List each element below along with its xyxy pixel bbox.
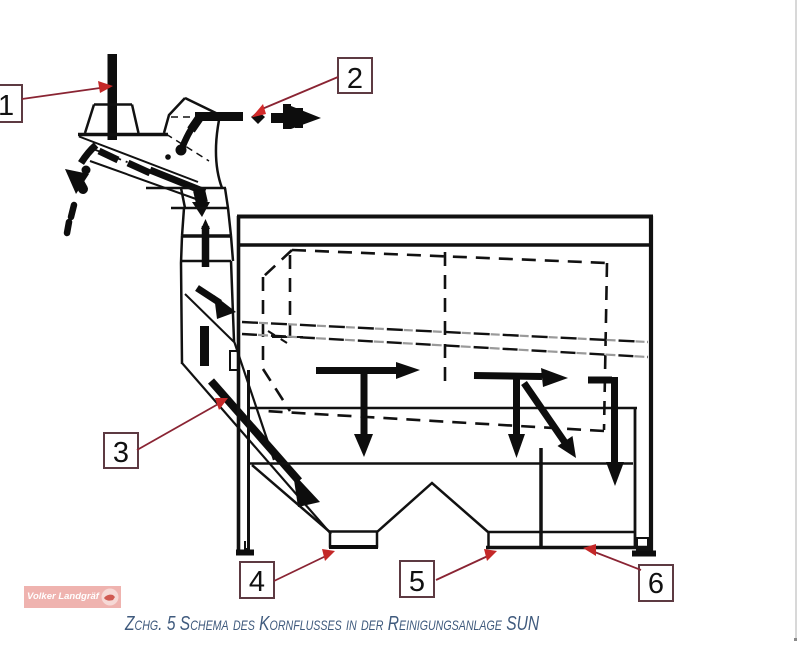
svg-text:5: 5 — [409, 566, 425, 598]
svg-text:1: 1 — [0, 90, 14, 122]
svg-text:3: 3 — [113, 437, 129, 469]
svg-text:4: 4 — [249, 566, 265, 598]
svg-text:2: 2 — [347, 63, 363, 95]
svg-text:6: 6 — [648, 568, 664, 600]
